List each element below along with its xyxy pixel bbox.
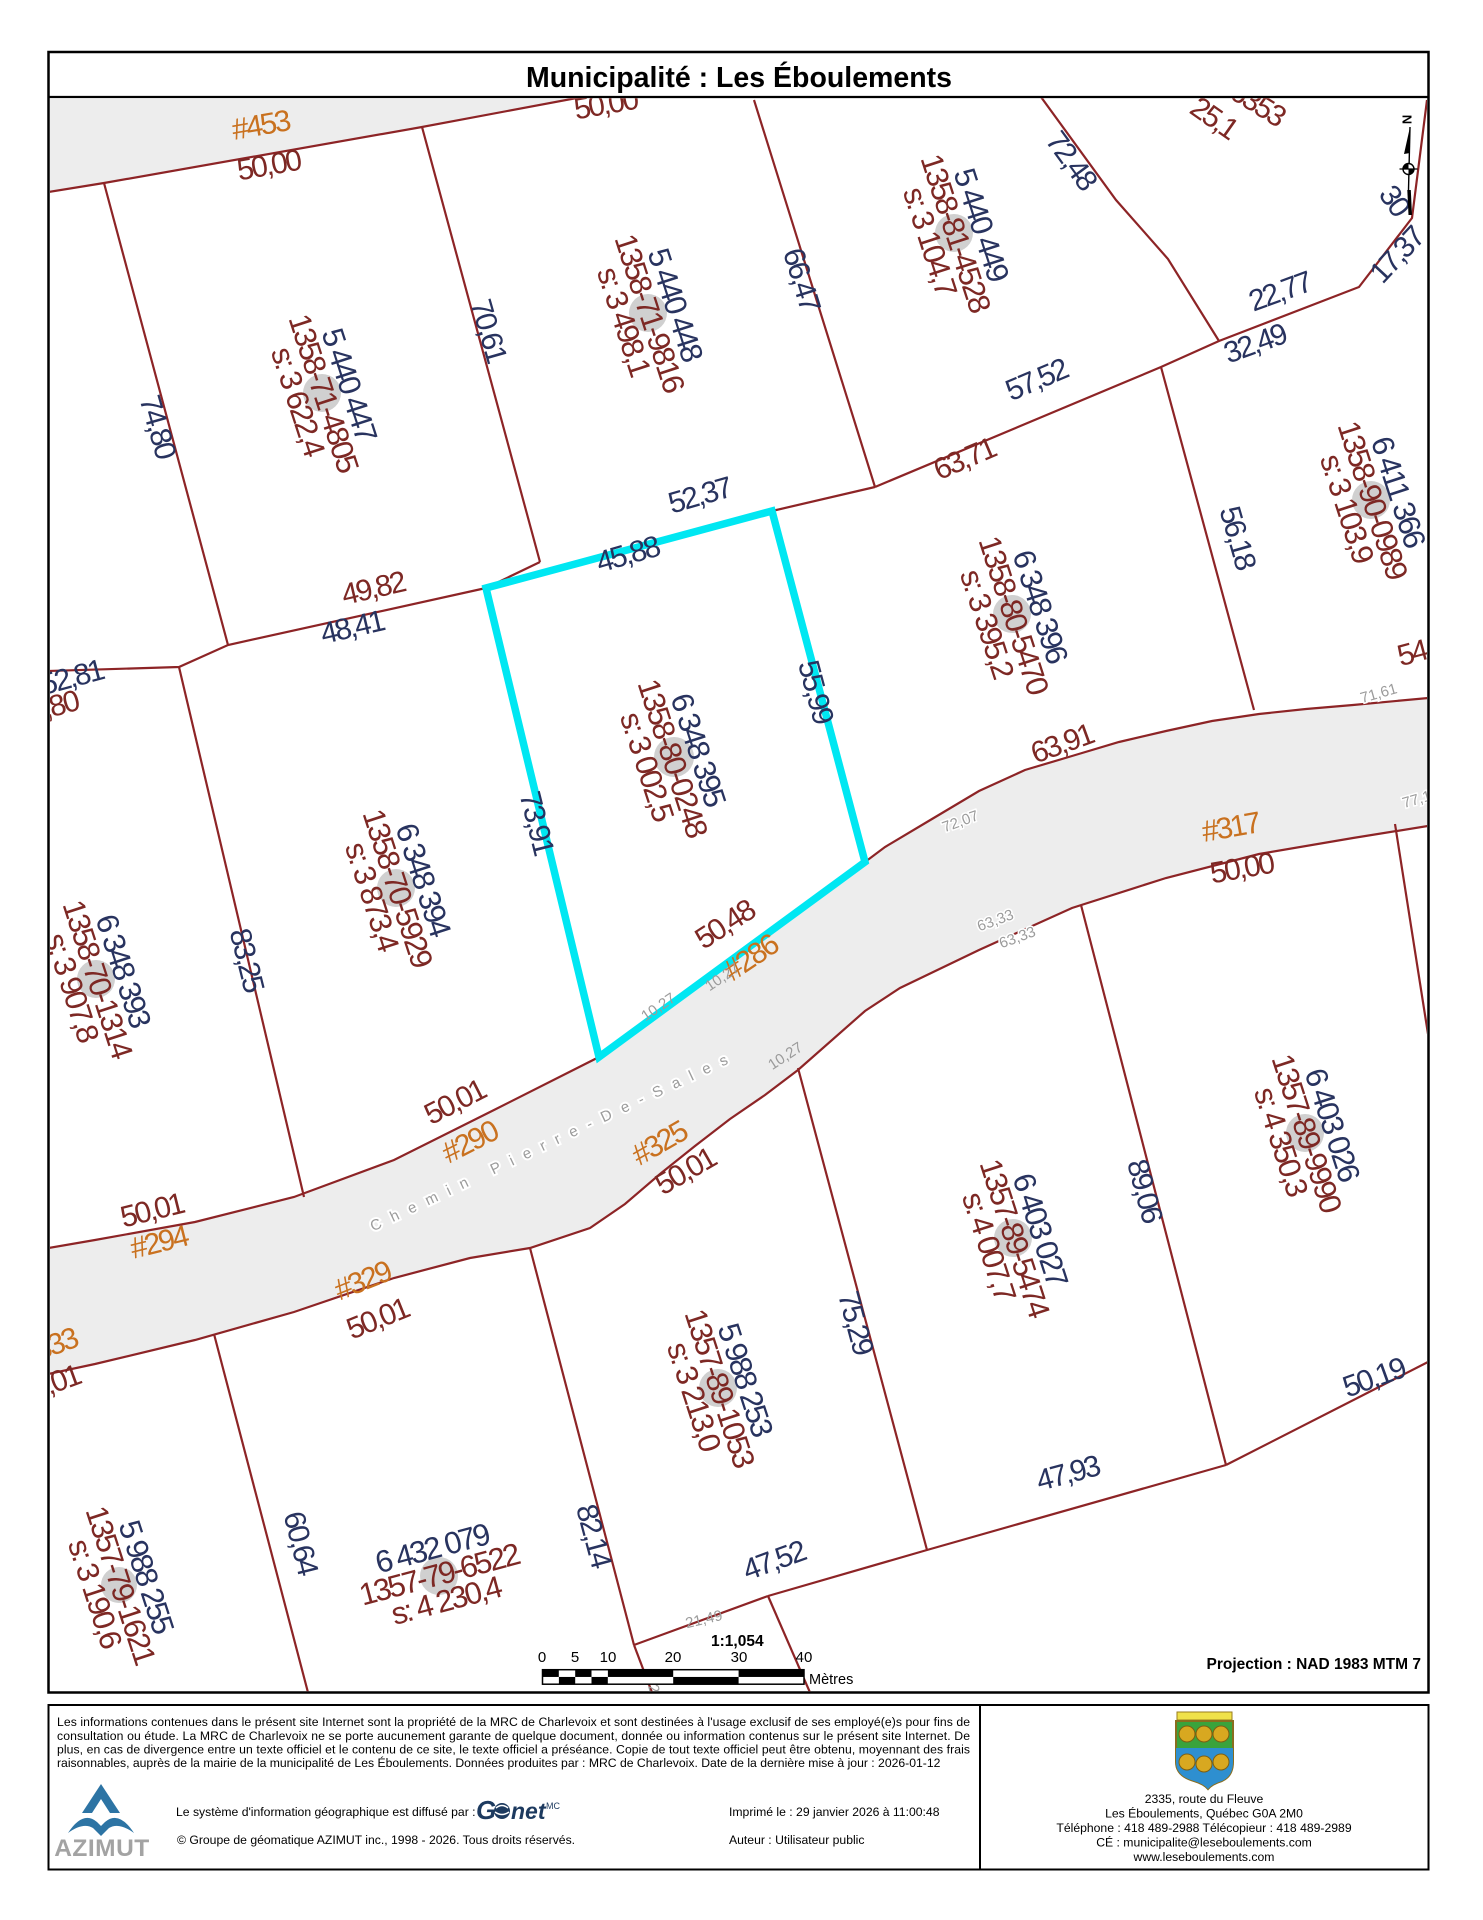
svg-text:AZIMUT: AZIMUT xyxy=(54,1835,150,1862)
svg-text:Imprimé le : 29 janvier 2026 à: Imprimé le : 29 janvier 2026 à 11:00:48 xyxy=(729,1805,940,1819)
svg-text:plus, en cas de divergence ent: plus, en cas de divergence entre un text… xyxy=(57,1743,970,1757)
svg-text:Téléphone : 418 489-2988 Téléc: Téléphone : 418 489-2988 Télécopieur : 4… xyxy=(1056,1821,1351,1835)
svg-text:N: N xyxy=(1400,115,1415,124)
svg-text:net: net xyxy=(511,1798,547,1824)
svg-text:Projection : NAD 1983 MTM 7: Projection : NAD 1983 MTM 7 xyxy=(1207,1656,1421,1673)
svg-text:Le système d'information géogr: Le système d'information géographique es… xyxy=(176,1805,476,1819)
svg-text:consultation ou étude. La MRC: consultation ou étude. La MRC de Charlev… xyxy=(57,1729,970,1743)
svg-text:2335, route du Fleuve: 2335, route du Fleuve xyxy=(1145,1792,1264,1806)
svg-text:CÉ : municipalite@leseboulemen: CÉ : municipalite@leseboulements.com xyxy=(1096,1835,1312,1850)
svg-text:Les Éboulements, Québec G0A 2M: Les Éboulements, Québec G0A 2M0 xyxy=(1105,1806,1303,1821)
svg-text:Auteur : Utilisateur public: Auteur : Utilisateur public xyxy=(729,1833,864,1847)
svg-text:20: 20 xyxy=(665,1649,682,1666)
svg-text:Mètres: Mètres xyxy=(809,1672,853,1688)
svg-text:5: 5 xyxy=(571,1649,579,1666)
svg-text:1:1,054: 1:1,054 xyxy=(711,1633,764,1650)
svg-text:G: G xyxy=(476,1795,496,1825)
svg-text:www.leseboulements.com: www.leseboulements.com xyxy=(1133,1850,1275,1864)
svg-text:© Groupe de géomatique AZIMUT: © Groupe de géomatique AZIMUT inc., 1998… xyxy=(177,1833,575,1847)
svg-text:raisonnables, auprès de la mai: raisonnables, auprès de la mairie de la … xyxy=(57,1755,941,1770)
svg-text:0: 0 xyxy=(538,1649,546,1666)
svg-text:40: 40 xyxy=(796,1649,813,1666)
svg-text:30: 30 xyxy=(731,1649,748,1666)
svg-text:Les informations contenues dan: Les informations contenues dans le prése… xyxy=(57,1715,970,1729)
svg-text:10: 10 xyxy=(600,1649,617,1666)
svg-text:MC: MC xyxy=(546,1801,560,1811)
svg-text:Municipalité : Les Éboulements: Municipalité : Les Éboulements xyxy=(526,62,952,94)
